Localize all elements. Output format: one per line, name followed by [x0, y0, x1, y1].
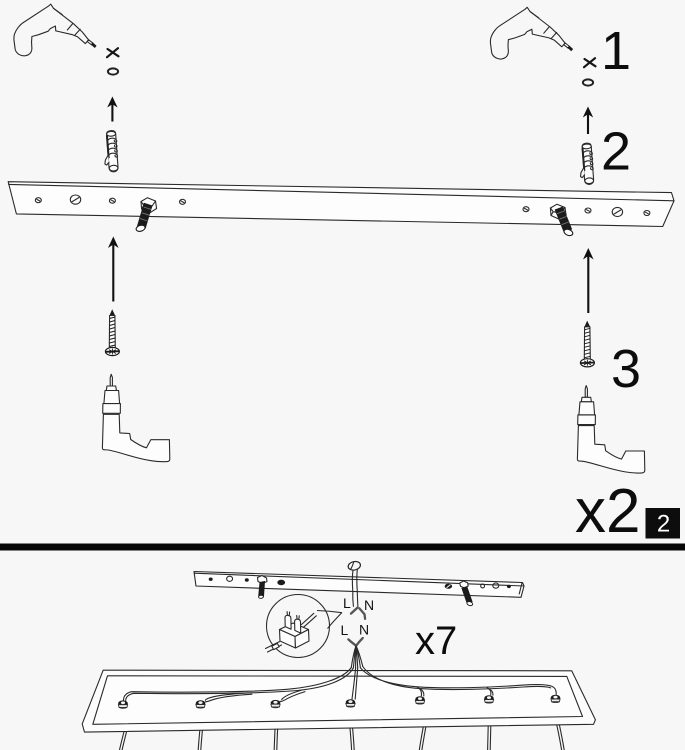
svg-text:2: 2: [657, 511, 670, 538]
svg-text:L: L: [341, 622, 349, 638]
svg-text:x7: x7: [415, 619, 457, 663]
svg-text:x2: x2: [575, 477, 640, 546]
svg-text:1: 1: [601, 21, 631, 81]
svg-text:L: L: [343, 595, 351, 611]
svg-text:3: 3: [611, 339, 641, 399]
svg-text:N: N: [364, 597, 374, 613]
svg-text:N: N: [359, 622, 369, 638]
svg-text:2: 2: [601, 122, 631, 182]
